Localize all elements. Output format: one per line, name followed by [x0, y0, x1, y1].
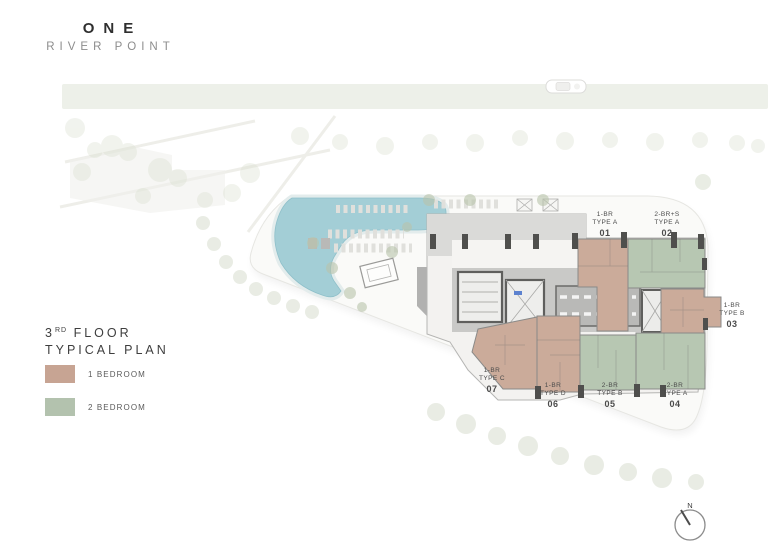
plan-title-line2: TYPICAL PLAN	[45, 342, 169, 359]
brand-logo: ONE RIVER POINT	[30, 20, 186, 53]
legend-item-2-bedroom: 2 BEDROOM	[45, 398, 146, 416]
lobby-marker	[514, 291, 522, 295]
floor-number: 3	[45, 326, 55, 340]
compass: N	[675, 501, 705, 540]
legend-swatch-2br	[45, 398, 75, 416]
unit-type: TYPE D	[521, 390, 585, 398]
unit-bed: 2-BR	[643, 382, 707, 390]
pool-cabana	[321, 238, 330, 249]
unit-type: TYPE B	[578, 390, 642, 398]
boat-icon	[546, 80, 586, 93]
unit-number: 04	[643, 398, 707, 410]
unit-type: TYPE A	[573, 219, 637, 227]
stair-core	[458, 272, 502, 322]
brand-subtitle: RIVER POINT	[30, 41, 186, 53]
unit-number: 05	[578, 398, 642, 410]
legend-swatch-1br	[45, 365, 75, 383]
page-title: 3RD FLOOR TYPICAL PLAN	[45, 322, 169, 359]
unit-label-06: 1-BR TYPE D 06	[521, 382, 585, 410]
unit-06-area	[537, 316, 580, 392]
unit-label-01: 1-BR TYPE A 01	[573, 211, 637, 239]
site-plan-graphic: N	[0, 0, 770, 545]
unit-number: 01	[573, 227, 637, 239]
unit-type: TYPE A	[643, 390, 707, 398]
floor-word: FLOOR	[74, 326, 132, 340]
unit-02-area	[628, 239, 705, 288]
unit-bed: 2-BR+S	[635, 211, 699, 219]
river-band	[62, 84, 768, 109]
unit-bed: 1-BR	[460, 367, 524, 375]
unit-label-02: 2-BR+S TYPE A 02	[635, 211, 699, 239]
unit-type: TYPE A	[635, 219, 699, 227]
legend: 1 BEDROOM 2 BEDROOM	[45, 365, 146, 431]
brand-name: ONE	[30, 20, 186, 37]
unit-bed: 2-BR	[578, 382, 642, 390]
unit-label-07: 1-BR TYPE C 07	[460, 367, 524, 395]
interior-rooms	[452, 240, 586, 268]
unit-number: 03	[700, 318, 764, 330]
floorplan-page: N ONE RIVER POINT 3RD FLOOR TYPICAL PLAN…	[0, 0, 770, 545]
legend-label-2br: 2 BEDROOM	[88, 403, 146, 412]
unit-label-04: 2-BR TYPE A 04	[643, 382, 707, 410]
unit-bed: 1-BR	[573, 211, 637, 219]
unit-number: 02	[635, 227, 699, 239]
unit-number: 07	[460, 383, 524, 395]
unit-bed: 1-BR	[700, 302, 764, 310]
legend-item-1-bedroom: 1 BEDROOM	[45, 365, 146, 383]
unit-number: 06	[521, 398, 585, 410]
unit-label-03: 1-BR TYPE B 03	[700, 302, 764, 330]
unit-label-05: 2-BR TYPE B 05	[578, 382, 642, 410]
compass-north-label: N	[687, 501, 692, 510]
unit-bed: 1-BR	[521, 382, 585, 390]
unit-type: TYPE C	[460, 375, 524, 383]
unit-04-area	[636, 333, 705, 389]
unit-type: TYPE B	[700, 310, 764, 318]
legend-label-1br: 1 BEDROOM	[88, 370, 146, 379]
floor-ordinal: RD	[55, 327, 67, 334]
plan-title-line1: 3RD FLOOR	[45, 322, 169, 342]
